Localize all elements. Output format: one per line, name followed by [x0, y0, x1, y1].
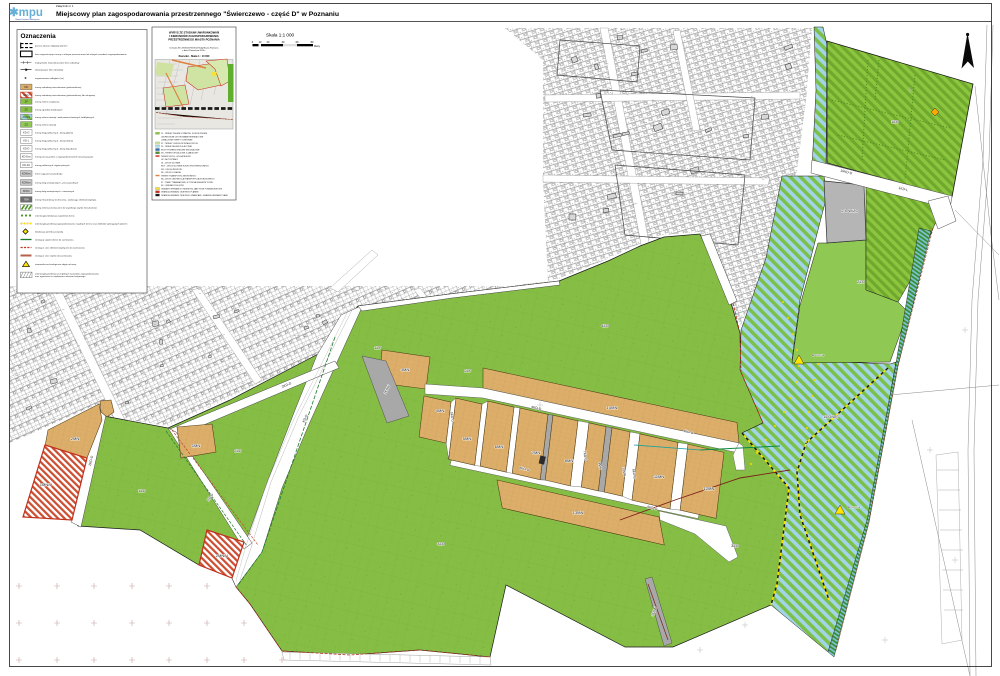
svg-text:tereny zieleni urządzonej: tereny zieleni urządzonej — [35, 100, 60, 103]
svg-text:maksymalne nieprzekraczalne li: maksymalne nieprzekraczalne linie zabudo… — [35, 61, 80, 64]
svg-text:tereny zabudowy mieszkaniowej: tereny zabudowy mieszkaniowej jednorodzi… — [35, 86, 82, 89]
svg-text:tereny dróg publicznych - klas: tereny dróg publicznych - klasy dojazdow… — [35, 147, 77, 150]
svg-text:tereny ogrodów działkowych: tereny ogrodów działkowych — [35, 108, 63, 111]
svg-text:4MN: 4MN — [436, 408, 445, 413]
svg-text:3MN: 3MN — [401, 367, 410, 372]
svg-text:istniejące sieci cieplne do za: istniejące sieci cieplne do zachowania — [35, 254, 73, 257]
svg-text:WODY POWIERZCHNIOWE SRODLADOWE: WODY POWIERZCHNIOWE SRODLADOWE — [161, 148, 200, 151]
svg-text:1ZO: 1ZO — [891, 119, 899, 124]
svg-text:KD-G: KD-G — [23, 131, 29, 135]
svg-text:14MN: 14MN — [607, 405, 618, 410]
svg-text:1ZP: 1ZP — [374, 345, 382, 350]
svg-text:obowiązujące linie zabudowy: obowiązujące linie zabudowy — [35, 70, 64, 72]
svg-text:GP - AUTOSTRADY: GP - AUTOSTRADY — [161, 158, 179, 161]
svg-text:8MN: 8MN — [565, 458, 574, 463]
svg-text:istniejące sieci elektroenerge: istniejące sieci elektroenergetyczne do … — [35, 246, 85, 249]
svg-text:KD-Dx: KD-Dx — [22, 163, 30, 167]
svg-text:4ZO: 4ZO — [601, 323, 609, 328]
svg-text:2ZO: 2ZO — [857, 279, 865, 284]
svg-text:PRZESTRZENNEGO MIASTA POZNANIA: PRZESTRZENNEGO MIASTA POZNANIA — [168, 37, 219, 41]
svg-text:GL - DROGI GLOWNE: GL - DROGI GLOWNE — [161, 162, 181, 164]
svg-text:tereny zieleni przeznaczone do: tereny zieleni przeznaczone do wspólnego… — [35, 206, 97, 209]
svg-text:KDWxs: KDWxs — [22, 181, 31, 185]
svg-text:KD-L: KD-L — [23, 139, 29, 143]
svg-text:Kierunki - Skala 1 : 10 000: Kierunki - Skala 1 : 10 000 — [179, 55, 210, 58]
svg-text:Miejscowy plan zagospodarowani: Miejscowy plan zagospodarowania przestrz… — [56, 9, 339, 18]
svg-text:2MN/U: 2MN/U — [216, 553, 229, 558]
svg-text:OBSZARY WPISANE DO REJESTRU ZA: OBSZARY WPISANE DO REJESTRU ZABYTKOW POM… — [161, 187, 223, 190]
svg-text:12MN: 12MN — [704, 486, 715, 491]
svg-text:1ZO/WS: 1ZO/WS — [823, 414, 839, 419]
svg-text:GRANICA OBSZARU OBJETEGO GRANI: GRANICA OBSZARU OBJETEGO GRANICAMI - GRA… — [161, 194, 229, 197]
svg-text:stanowisko archeologiczne obję: stanowisko archeologiczne objęte ochroną — [35, 263, 77, 266]
svg-text:AP 65-67/58: AP 65-67/58 — [812, 354, 825, 357]
svg-text:WZ - DROGI ZBIORCZE: WZ - DROGI ZBIORCZE — [161, 169, 183, 171]
svg-text:orientacyjny przebieg zagospod: orientacyjny przebieg zagospodarowania i… — [35, 222, 127, 225]
svg-text:KDWr: KDWr — [23, 189, 30, 193]
svg-text:MN: MN — [24, 85, 28, 89]
svg-text:tereny pieszo-jezdne z zagospo: tereny pieszo-jezdne z zagospodarowaniem… — [35, 155, 93, 158]
svg-text:ZO/WS: ZO/WS — [22, 117, 30, 119]
svg-text:ZO: ZO — [24, 123, 28, 127]
svg-text:TERENY DROG - WG KATEGORII:: TERENY DROG - WG KATEGORII: — [161, 155, 191, 158]
svg-text:granica obszaru objętego plane: granica obszaru objętego planem — [35, 44, 68, 47]
svg-text:UZUPELNIONE UZYTKOWANIE REKREA: UZUPELNIONE UZYTKOWANIE REKREACYJNE — [161, 135, 204, 138]
svg-text:7MN: 7MN — [532, 450, 541, 455]
svg-text:tereny infrastruktury technicz: tereny infrastruktury technicznej - wodo… — [35, 198, 97, 201]
svg-text:tereny dróg wewnętrznych - pie: tereny dróg wewnętrznych - pieszo-jezdny… — [35, 181, 79, 184]
svg-text:tereny zabudowy mieszkaniowej: tereny zabudowy mieszkaniowej jednorodzi… — [35, 94, 96, 97]
svg-text:Z2 - TERENY OGRODOW DZIALKOWYC: Z2 - TERENY OGRODOW DZIALKOWYCH — [161, 142, 198, 145]
svg-text:zwymiarowane odległości (m): zwymiarowane odległości (m) — [35, 77, 64, 80]
svg-text:lokalizacja pomnika przyrody: lokalizacja pomnika przyrody — [35, 230, 64, 233]
svg-text:Załącznik nr 1: Załącznik nr 1 — [56, 4, 74, 8]
svg-text:OZNACZONE STREFY OCHRONNE: OZNACZONE STREFY OCHRONNE — [161, 139, 193, 142]
svg-text:Z3 - TEREN ZIELENI IZOLACYJNEJ: Z3 - TEREN ZIELENI IZOLACYJNEJ — [161, 145, 192, 148]
svg-text:ITW: ITW — [24, 198, 29, 202]
svg-text:KK - OBSZAR KOLEJOWY: KK - OBSZAR KOLEJOWY — [161, 184, 185, 187]
svg-text:tereny dróg publicznych - klas: tereny dróg publicznych - klasy głównej — [35, 131, 74, 134]
svg-text:1MN: 1MN — [192, 443, 201, 448]
svg-text:3ZO: 3ZO — [437, 541, 445, 546]
svg-text:orientacyjna lokalizacja szpal: orientacyjna lokalizacja szpalerów drzew — [35, 214, 75, 217]
svg-text:1MN/U: 1MN/U — [40, 482, 53, 487]
svg-text:TERENY TRANSPORTU ZBIOROWEGO:: TERENY TRANSPORTU ZBIOROWEGO: — [161, 174, 197, 177]
svg-text:ZD: ZD — [25, 108, 29, 112]
svg-text:Uchwała Nr LXXII/1137/VI/2014: Uchwała Nr LXXII/1137/VI/2014 Rady Miast… — [170, 47, 220, 50]
svg-text:✱mpu: ✱mpu — [9, 7, 43, 19]
svg-text:KDWxs: KDWxs — [22, 172, 31, 176]
svg-text:WL - DROGI LOKALNE: WL - DROGI LOKALNE — [161, 171, 182, 174]
svg-text:Metry: Metry — [314, 45, 321, 48]
svg-text:z dnia 23 września 2014 r.: z dnia 23 września 2014 r. — [182, 50, 206, 52]
svg-text:MN/U: MN/U — [23, 94, 29, 97]
svg-text:5MN: 5MN — [463, 436, 472, 441]
svg-text:linie rozgraniczające tereny o: linie rozgraniczające tereny o różnym pr… — [35, 53, 127, 56]
svg-text:13MN: 13MN — [573, 510, 584, 515]
svg-text:KD-Dxs: KD-Dxs — [22, 155, 32, 159]
svg-text:3ZO: 3ZO — [731, 543, 739, 548]
svg-text:2ZP: 2ZP — [464, 368, 472, 373]
svg-text:KT - TRASY TRAMWAJOWE, W TYM N: KT - TRASY TRAMWAJOWE, W TYM NA WLASNYM … — [161, 181, 214, 184]
svg-text:tereny dróg publicznych - klas: tereny dróg publicznych - klasy lokalnej — [35, 139, 74, 142]
svg-text:AP 65-67/56: AP 65-67/56 — [848, 506, 861, 509]
svg-text:ZN - TERENY WYLACZONE Z ZABUDO: ZN - TERENY WYLACZONE Z ZABUDOWY — [161, 152, 199, 155]
svg-text:2ZD: 2ZD — [234, 448, 242, 453]
svg-text:2 ITW/ZO: 2 ITW/ZO — [841, 208, 858, 213]
svg-text:tereny publicznych ciągów pies: tereny publicznych ciągów pieszych — [35, 164, 70, 167]
svg-text:tereny zieleni otwartej: tereny zieleni otwartej — [35, 123, 57, 126]
svg-text:tereny dróg wewnętrznych - row: tereny dróg wewnętrznych - rowerowych — [35, 190, 75, 193]
svg-text:Z1 - TERENY ZIELENI OTWARTEJ,: Z1 - TERENY ZIELENI OTWARTEJ, KLINOW ZIE… — [161, 132, 208, 135]
svg-text:teren ciągu pieszo-jezdnego: teren ciągu pieszo-jezdnego — [35, 172, 63, 175]
svg-text:ZP: ZP — [25, 100, 29, 104]
svg-text:Skala 1:1 000: Skala 1:1 000 — [266, 33, 295, 38]
svg-text:tereny zieleni otwartej i wód: tereny zieleni otwartej i wód powierzchn… — [35, 116, 95, 119]
svg-text:2MN: 2MN — [71, 436, 80, 441]
svg-text:Oznaczenia: Oznaczenia — [21, 33, 57, 40]
svg-text:WOT - DROGI GLOWNE RUCHU PRZYS: WOT - DROGI GLOWNE RUCHU PRZYSPIESZONEGO — [161, 166, 209, 168]
svg-text:1ZD: 1ZD — [138, 488, 146, 493]
svg-text:KA - DROGI LINIOWE DLA TRANSPO: KA - DROGI LINIOWE DLA TRANSPORTU AUTOBU… — [161, 178, 215, 181]
svg-text:istniejący szpaler drzew do za: istniejący szpaler drzew do zachowania — [35, 238, 74, 241]
svg-text:KD-D: KD-D — [23, 147, 29, 151]
svg-text:oraz ograniczeń w użytkowaniu: oraz ograniczeń w użytkowaniu obszaru ko… — [35, 275, 86, 278]
svg-text:GRANICA OBSZARU OBJETEGO PLANE: GRANICA OBSZARU OBJETEGO PLANEM — [161, 191, 199, 194]
svg-text:11MN: 11MN — [654, 474, 664, 479]
svg-text:6MN: 6MN — [495, 444, 504, 449]
